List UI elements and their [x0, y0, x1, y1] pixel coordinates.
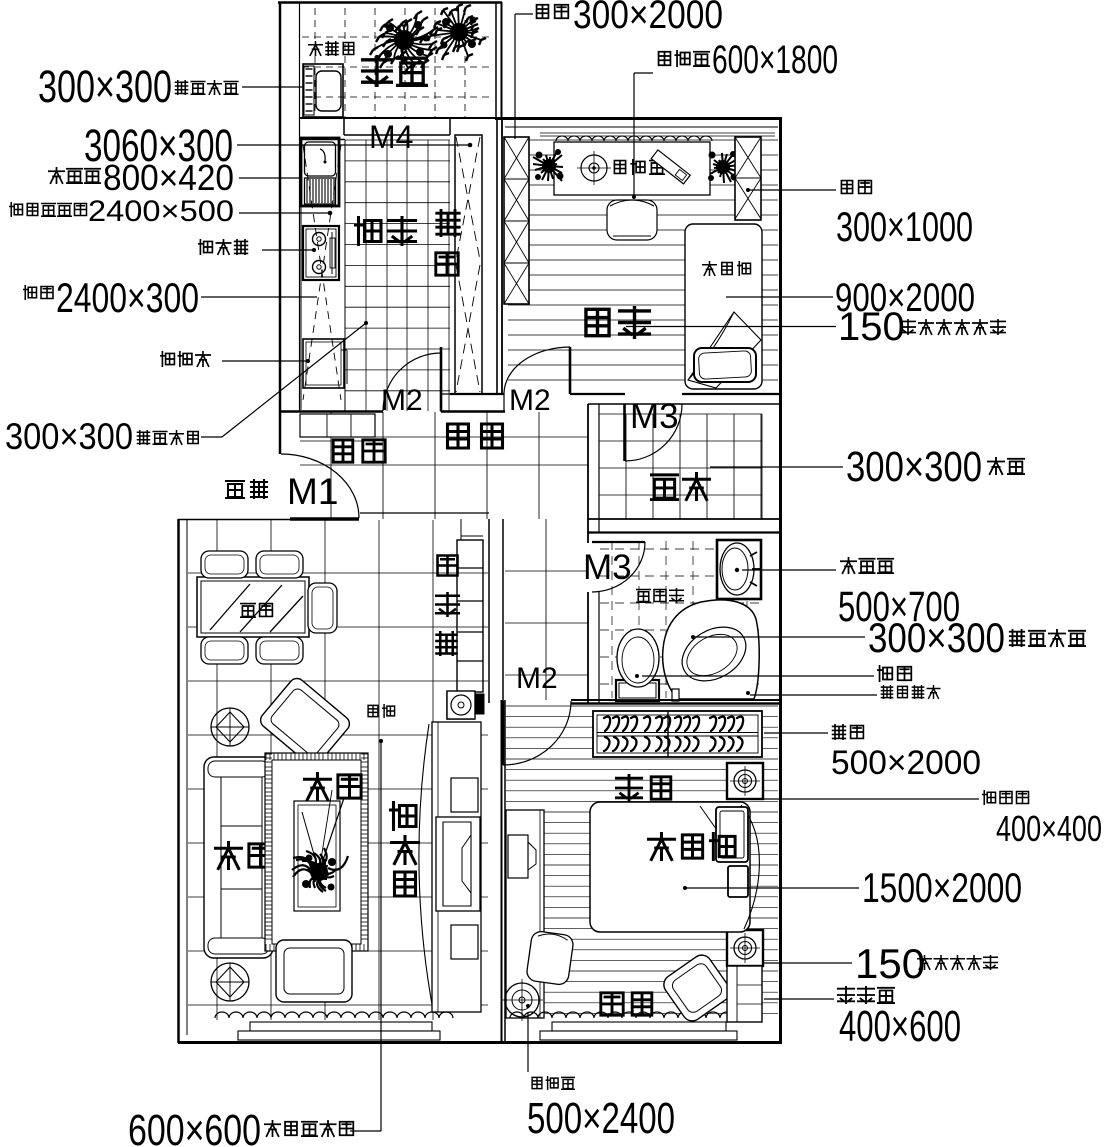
- svg-text:M2: M2: [381, 384, 423, 417]
- svg-text:M2: M2: [516, 662, 558, 695]
- svg-text:300×300: 300×300: [38, 61, 172, 112]
- svg-text:300×2000: 300×2000: [573, 0, 723, 37]
- svg-text:150: 150: [855, 940, 925, 987]
- svg-text:300×300: 300×300: [868, 614, 1005, 661]
- svg-text:800×420: 800×420: [103, 157, 234, 198]
- svg-text:300×1000: 300×1000: [836, 203, 973, 250]
- svg-text:400×600: 400×600: [839, 1002, 961, 1051]
- svg-text:300×300: 300×300: [846, 443, 982, 491]
- svg-text:M2: M2: [509, 384, 551, 417]
- svg-text:M3: M3: [630, 397, 679, 436]
- svg-text:M4: M4: [369, 119, 413, 155]
- svg-text:600×600: 600×600: [128, 1106, 261, 1147]
- svg-text:1500×2000: 1500×2000: [862, 864, 1022, 911]
- svg-text:2400×300: 2400×300: [56, 274, 199, 321]
- svg-text:M3: M3: [583, 548, 632, 587]
- svg-text:150: 150: [838, 305, 905, 349]
- svg-text:600×1800: 600×1800: [712, 38, 838, 82]
- svg-text:500×2000: 500×2000: [831, 744, 981, 782]
- svg-text:500×2400: 500×2400: [527, 1094, 675, 1143]
- svg-text:300×300: 300×300: [5, 416, 133, 457]
- svg-text:400×400: 400×400: [996, 808, 1102, 849]
- svg-text:2400×500: 2400×500: [88, 195, 234, 228]
